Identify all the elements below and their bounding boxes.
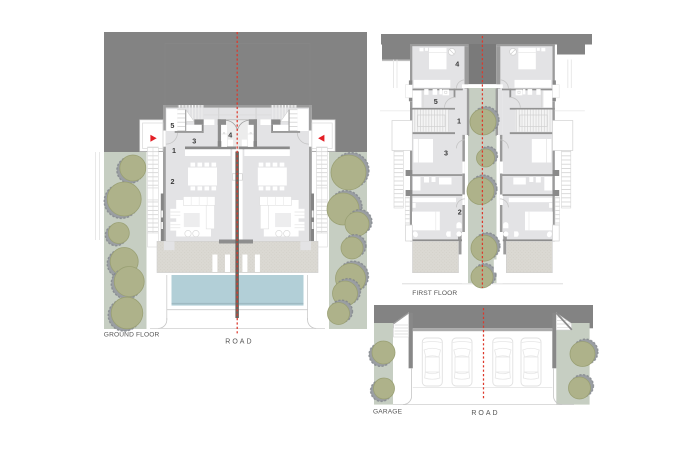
svg-text:5: 5	[170, 121, 174, 130]
svg-text:FIRST FLOOR: FIRST FLOOR	[412, 290, 457, 297]
svg-text:4: 4	[228, 131, 232, 140]
svg-text:5: 5	[434, 97, 438, 106]
svg-text:4: 4	[455, 59, 459, 68]
svg-text:3: 3	[444, 149, 448, 158]
svg-text:2: 2	[171, 177, 175, 186]
svg-text:1: 1	[172, 146, 176, 155]
svg-text:ROAD: ROAD	[471, 410, 499, 417]
svg-text:1: 1	[457, 116, 461, 125]
svg-text:GARAGE: GARAGE	[373, 409, 403, 416]
svg-text:GROUND FLOOR: GROUND FLOOR	[104, 332, 160, 339]
svg-text:3: 3	[192, 136, 196, 145]
svg-text:ROAD: ROAD	[225, 339, 253, 346]
svg-text:2: 2	[458, 207, 462, 216]
